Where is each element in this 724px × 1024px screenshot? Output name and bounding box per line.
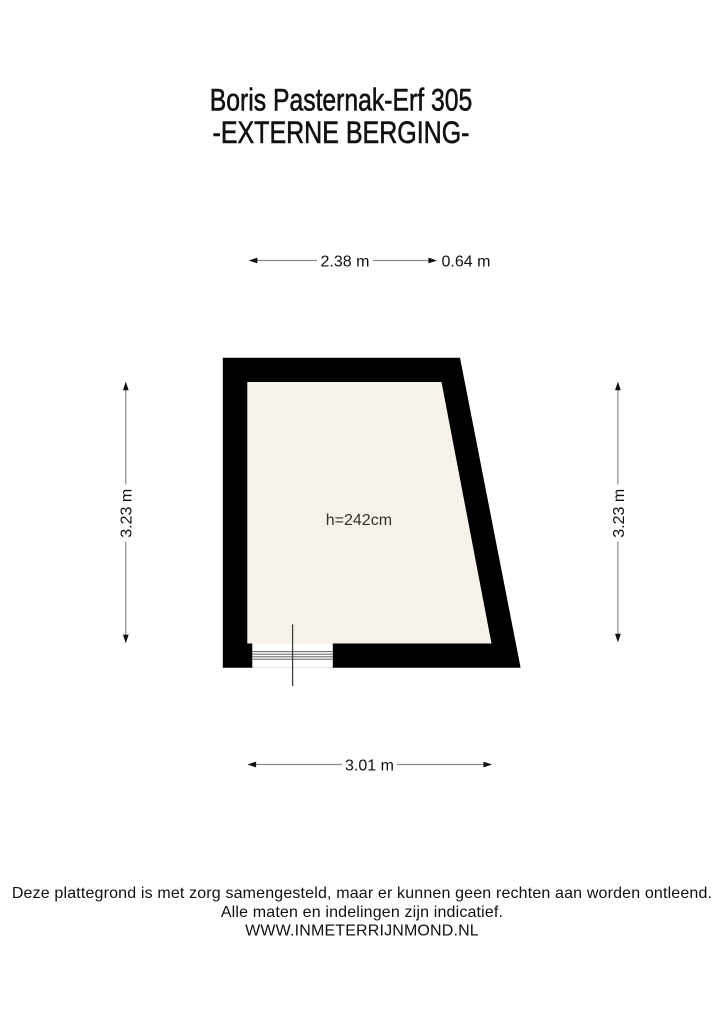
svg-text:-EXTERNE BERGING-: -EXTERNE BERGING- xyxy=(213,114,470,150)
svg-text:Boris Pasternak-Erf 305: Boris Pasternak-Erf 305 xyxy=(210,82,473,118)
svg-text:2.38 m: 2.38 m xyxy=(321,254,370,271)
svg-text:0.64 m: 0.64 m xyxy=(442,253,491,270)
svg-text:Alle maten en indelingen zijn: Alle maten en indelingen zijn indicatief… xyxy=(221,904,503,921)
svg-text:WWW.INMETERRIJNMOND.NL: WWW.INMETERRIJNMOND.NL xyxy=(245,922,479,939)
svg-text:3.23 m: 3.23 m xyxy=(611,489,628,538)
svg-text:h=242cm: h=242cm xyxy=(326,512,392,529)
svg-text:3.01 m: 3.01 m xyxy=(345,758,394,775)
svg-text:3.23 m: 3.23 m xyxy=(119,489,136,538)
svg-text:Deze plattegrond is met zorg s: Deze plattegrond is met zorg samengestel… xyxy=(12,885,712,902)
